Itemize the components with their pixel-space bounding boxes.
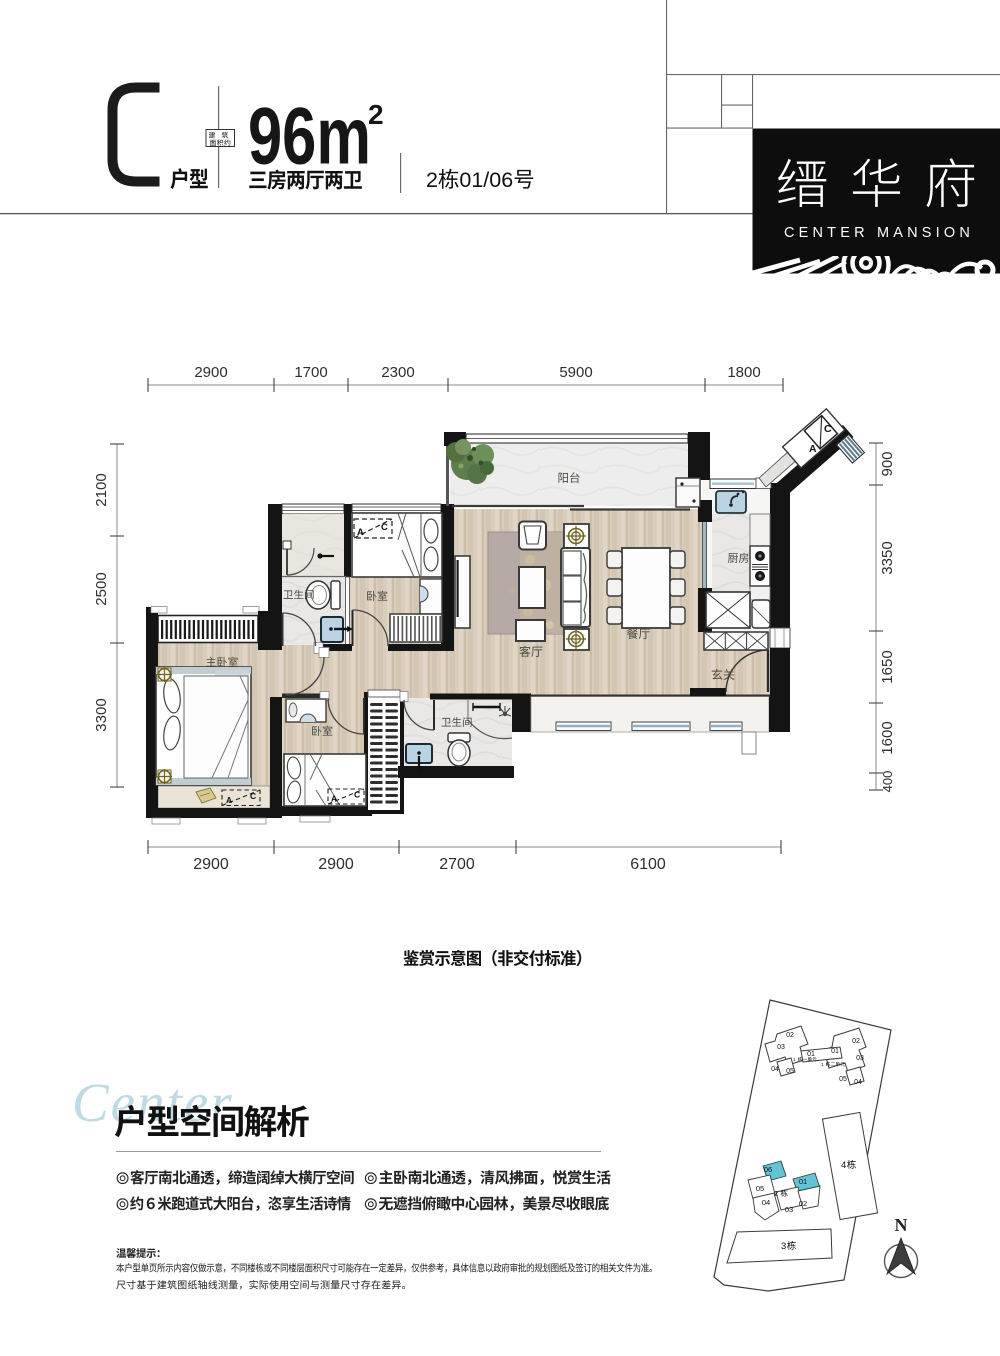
svg-text:C: C [381,522,388,533]
svg-text:2900: 2900 [318,856,354,873]
svg-text:3300: 3300 [93,698,110,731]
svg-text:01: 01 [799,1177,807,1186]
svg-text:1600: 1600 [879,721,896,754]
svg-text:A: A [357,527,364,538]
svg-text:1700: 1700 [294,364,327,381]
svg-text:02: 02 [799,1199,807,1208]
svg-text:CENTER MANSION: CENTER MANSION [784,225,974,241]
svg-text:900: 900 [879,451,896,476]
svg-text:C: C [354,790,360,800]
svg-text:2900: 2900 [194,364,227,381]
svg-text:A: A [226,795,232,805]
svg-text:400: 400 [880,771,895,793]
svg-text:01: 01 [831,1048,839,1055]
svg-text:05: 05 [756,1184,764,1193]
svg-text:2: 2 [426,168,438,192]
svg-text:2300: 2300 [381,364,414,381]
svg-text:1: 1 [821,1062,824,1068]
svg-text:C: C [824,423,832,435]
svg-text:03: 03 [856,1055,864,1062]
svg-text:01: 01 [807,1051,815,1058]
svg-text:01/06: 01/06 [459,168,513,192]
svg-text:06: 06 [764,1165,772,1174]
svg-text:02: 02 [786,1032,794,1039]
svg-text:6100: 6100 [630,856,666,873]
svg-text:05: 05 [786,1068,794,1075]
svg-text:3: 3 [781,1241,786,1252]
svg-text:1800: 1800 [727,364,760,381]
svg-text:3350: 3350 [879,541,896,574]
svg-text:N: N [895,1215,908,1235]
svg-text:4: 4 [841,1160,846,1171]
svg-text:2100: 2100 [93,473,110,506]
svg-text:A: A [809,443,817,455]
svg-text:03: 03 [785,1205,793,1214]
svg-text:02: 02 [852,1038,860,1045]
svg-text:5900: 5900 [559,364,592,381]
svg-text:1650: 1650 [879,650,896,683]
svg-text:96m: 96m [248,92,371,182]
svg-text:2: 2 [368,99,384,130]
svg-text:A: A [331,794,337,804]
svg-text:03: 03 [777,1044,785,1051]
svg-text:2900: 2900 [193,856,229,873]
svg-text:04: 04 [762,1198,770,1207]
svg-text:05: 05 [839,1076,847,1083]
svg-text:04: 04 [771,1066,779,1073]
svg-text:04: 04 [854,1079,862,1086]
svg-text:C: C [250,791,256,801]
svg-text:2700: 2700 [439,856,475,873]
svg-text:2500: 2500 [93,572,110,605]
svg-text:Center: Center [72,1072,234,1133]
svg-text:2: 2 [774,1189,778,1198]
svg-text:1: 1 [793,1057,796,1063]
